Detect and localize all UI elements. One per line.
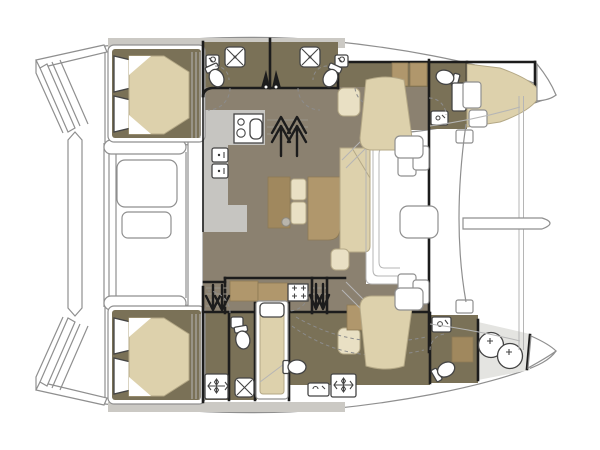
pillow	[114, 358, 131, 394]
pillow	[114, 96, 131, 132]
aft-cabinets	[230, 281, 308, 302]
windshield-line	[379, 148, 400, 268]
port-bow-berth	[463, 64, 537, 127]
port-aft-cabin	[108, 45, 205, 142]
mast-dot	[275, 86, 278, 89]
knob	[218, 154, 220, 156]
pillow	[114, 318, 131, 354]
mast-dot	[265, 86, 268, 89]
double-berth-mattress	[129, 56, 189, 134]
trampoline-edge	[459, 124, 466, 302]
drain-dot	[309, 56, 312, 59]
vanity-counter	[452, 337, 473, 362]
bowsprit	[463, 218, 550, 229]
wardrobe	[410, 63, 427, 86]
starboard-transom-steps	[36, 317, 107, 405]
single-berth-mattress	[260, 306, 284, 394]
starboard-mid-berth	[256, 301, 288, 399]
foredeck-hatch	[456, 300, 473, 313]
starboard-aft-cabin	[108, 306, 205, 404]
seat-cushion	[291, 179, 306, 200]
pillow	[114, 56, 131, 92]
cabinet	[258, 283, 288, 302]
pillow	[260, 303, 284, 317]
port-forepeak	[537, 64, 556, 101]
dinette-bench	[308, 177, 340, 240]
lounge-cushion	[395, 136, 423, 158]
aft-crossbeam	[68, 132, 82, 316]
forward-seat	[338, 88, 360, 116]
double-berth-mattress	[129, 318, 189, 396]
cabinet	[230, 281, 258, 301]
aft-cockpit	[104, 140, 186, 310]
cockpit-table	[117, 160, 177, 207]
galley-sink-icon	[250, 119, 262, 139]
table-pedestal	[282, 218, 290, 226]
step-seat	[463, 82, 481, 108]
forward-cockpit-table	[400, 206, 438, 238]
windshield-line	[373, 140, 400, 276]
seat-cushion	[291, 202, 306, 224]
lounge-cushion	[395, 288, 423, 310]
cockpit-side-table	[122, 212, 171, 238]
stool	[331, 249, 349, 270]
floorplan-page	[0, 0, 600, 450]
port-transom-steps	[36, 45, 107, 133]
catamaran-floorplan	[0, 0, 600, 450]
foredeck	[430, 96, 550, 350]
toilet-icon	[283, 360, 306, 374]
vent-unit	[288, 284, 308, 301]
knob	[218, 170, 220, 172]
wash-basin-icon	[308, 383, 329, 396]
drain-dot	[234, 56, 237, 59]
